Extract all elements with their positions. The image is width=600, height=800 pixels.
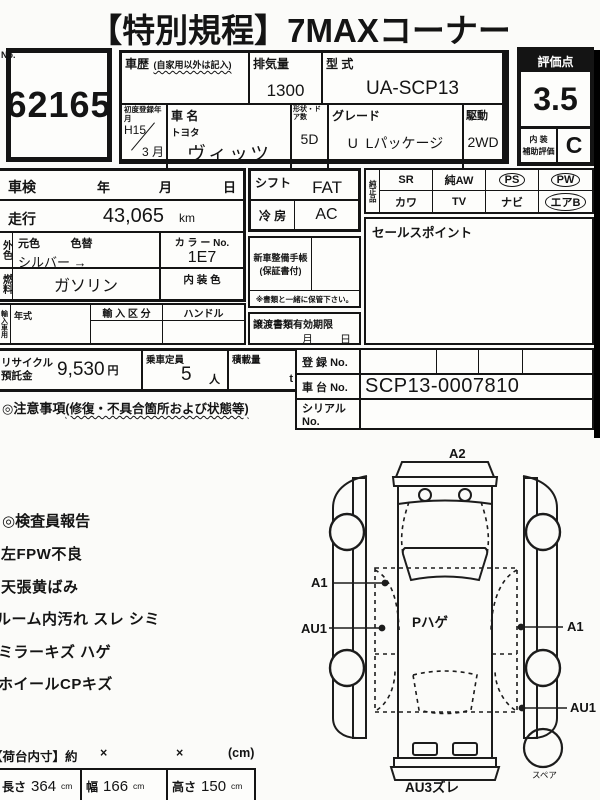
sales-point-box: セールスポイント (364, 217, 594, 345)
headlight-right (459, 489, 471, 501)
page-title: 【特別規程】7MAXコーナー (0, 4, 600, 52)
damage-zone-dashed (375, 502, 517, 714)
caution-note: (修復・不具合箇所および状態等) (65, 402, 248, 416)
grade-cell: グレード U Lパッケージ (329, 105, 464, 168)
transfer-docs-box: 譲渡書類有効期限 月 日 (248, 312, 361, 345)
cargo-x2: × (176, 746, 183, 760)
equipment-sr: SR (380, 170, 433, 191)
maker-name: トヨタ (171, 125, 287, 139)
color-change-label: 色替 (70, 238, 92, 250)
width-value: 166 (103, 778, 128, 795)
diagram-label-a2: A2 (449, 446, 466, 461)
first-registration-cell: 初度登録年月 H15 3 月 (122, 105, 168, 168)
import-handle-label: ハンドル (163, 305, 244, 321)
color-row: 外色 元色 色替 シルバー → カ ラ ー No. 1E7 (0, 233, 243, 269)
import-year-cell: 年式 (11, 305, 91, 343)
registration-no-label: 登 録 No. (297, 350, 361, 373)
mileage-label: 走行 (8, 209, 36, 229)
equipment-pw: PW (539, 170, 592, 191)
taillight-right (453, 743, 477, 755)
registration-no-row: 登 録 No. (297, 350, 592, 375)
inspection-row: 車検 年 月 日 (0, 171, 243, 201)
diagram-note-paint: Pハゲ (412, 614, 449, 630)
report-item: 左FPW不良 (1, 543, 82, 564)
history-note: (自家用以外は記入) (153, 60, 231, 70)
length-value: 364 (31, 778, 56, 795)
caution-heading: ◎注意事項(修復・不具合箇所および状態等) (2, 398, 249, 417)
first-registration-label: 初度登録年月 (124, 106, 164, 123)
inspection-label: 車検 (8, 177, 36, 197)
capacity-cell: 乗車定員 5 人 (143, 351, 229, 389)
sales-point-label: セールスポイント (372, 226, 472, 240)
cargo-x1: × (100, 746, 107, 760)
history-label: 車歴 (125, 57, 149, 71)
recycle-fee: 9,530 (57, 359, 105, 381)
report-item: ミラーキズ ハゲ (0, 641, 111, 662)
displacement-value: 1300 (253, 81, 318, 101)
car-name-label: 車 名 (171, 109, 198, 123)
import-handle-cell: ハンドル (163, 305, 244, 343)
serial-no-row: シリアル No. (297, 400, 592, 428)
fuel-value: ガソリン (13, 269, 161, 299)
diagram-label-a1-left: A1 (311, 575, 328, 590)
displacement-label: 排気量 (253, 57, 289, 71)
history-cell: 車歴 (自家用以外は記入) (122, 53, 250, 103)
rear-window (413, 671, 477, 714)
import-side-label: 輸入車用 (0, 305, 11, 343)
service-book-label: 新車整備手帳 (保証書付) (250, 238, 312, 290)
capacity-unit: 人 (209, 371, 220, 387)
right-rear-wheel (526, 650, 560, 686)
rear-bumper (394, 758, 496, 767)
inspection-month: 月 (159, 177, 172, 196)
oem-side-label: 純正品 (366, 170, 380, 212)
color-no-label: カ ラ ー No. (163, 234, 241, 249)
equipment-ps: PS (486, 170, 539, 191)
left-front-wheel (330, 514, 364, 550)
shape-value: 5D (293, 131, 326, 147)
cargo-height-cell: 高さ 150 cm (168, 770, 254, 800)
mileage-value: 43,065 (69, 205, 164, 228)
height-label: 高さ (172, 778, 196, 795)
left-rear-wheel (330, 650, 364, 686)
photo-edge-shadow (594, 50, 600, 438)
diagram-label-a1-right: A1 (567, 619, 584, 634)
exterior-color-side-label: 外色 (0, 233, 13, 267)
displacement-cell: 排気量 1300 (250, 53, 323, 103)
drive-label: 駆動 (466, 110, 488, 122)
transfer-docs-label: 譲渡書類有効期限 (253, 316, 333, 331)
headlight-left (419, 489, 431, 501)
service-book-box: 新車整備手帳 (保証書付) ※書類と一緒に保管下さい。 (248, 236, 361, 308)
ac-value: AC (295, 201, 358, 229)
car-name-cell: 車 名 トヨタ ヴィッツ (168, 105, 292, 168)
spare-tire (524, 729, 562, 767)
interior-color-cell: 内 装 色 (161, 269, 243, 299)
shape-cell: 形状・ドア数 5D (292, 105, 329, 168)
ac-row: 冷 房 AC (251, 201, 358, 229)
keep-documents-note: ※書類と一緒に保管下さい。 (250, 290, 359, 306)
taillight-left (413, 743, 437, 755)
capacity-label: 乗車定員 (146, 352, 184, 366)
recycle-table: リサイクル預託金 9,530 円 乗車定員 5 人 積載量 t (0, 348, 302, 392)
inspector-report-heading: ◎検査員報告 (2, 510, 90, 531)
front-bumper-lip (393, 477, 497, 486)
color-no-value: 1E7 (163, 249, 241, 267)
chassis-no-value: SCP13-0007810 (361, 375, 592, 398)
recycle-label: リサイクル預託金 (1, 357, 57, 382)
equipment-navi: ナビ (486, 191, 539, 212)
rear-bumper-skirt (391, 767, 499, 780)
shift-value: FAT (312, 178, 342, 198)
color-cell: 元色 色替 シルバー → (13, 233, 161, 267)
transfer-day: 日 (340, 331, 351, 347)
windshield (403, 548, 488, 580)
service-book-value-cell (312, 238, 359, 290)
lot-number-box: 62165 (6, 48, 112, 162)
diagram-label-au1-left: AU1 (301, 621, 327, 636)
diagram-label-au1-right: AU1 (570, 700, 596, 715)
model-code-label: 型 式 (326, 57, 353, 71)
report-item: ルーム内汚れ スレ シミ (0, 608, 160, 629)
oem-equipment-table: 純正品 SR 純AW PS PW カワ TV ナビ エアB (364, 168, 594, 214)
cargo-length-cell: 長さ 364 cm (0, 770, 82, 800)
cargo-dims-table: 長さ 364 cm 幅 166 cm 高さ 150 cm (0, 768, 256, 800)
chassis-no-label: 車 台 No. (297, 375, 361, 398)
cargo-width-cell: 幅 166 cm (82, 770, 168, 800)
car-name-value: ヴィッツ (171, 139, 287, 166)
lot-number: 62165 (6, 84, 111, 126)
width-unit: cm (133, 781, 144, 791)
lot-no-label: No. (1, 50, 16, 60)
load-label: 積載量 (232, 352, 261, 366)
auction-sheet: 【特別規程】7MAXコーナー No. 62165 車歴 (自家用以外は記入) 排… (0, 0, 600, 800)
mileage-row: 走行 43,065 km (0, 201, 243, 233)
ac-label: 冷 房 (251, 201, 295, 229)
interior-rating-grade: C (558, 129, 590, 162)
inspection-day: 日 (223, 177, 236, 196)
import-class-cell: 輸 入 区 分 (91, 305, 163, 343)
mileage-unit: km (179, 211, 195, 225)
interior-rating-label: 内 装 補助評価 (521, 129, 558, 162)
equipment-tv: TV (433, 191, 486, 212)
serial-no-label: シリアル No. (297, 400, 361, 428)
shift-ac-table: シフト FAT 冷 房 AC (248, 168, 361, 232)
first-registration-month: 3 月 (124, 143, 164, 160)
rating-score: 3.5 (521, 72, 590, 126)
hood-line (398, 501, 492, 505)
right-front-wheel (526, 514, 560, 550)
color-no-cell: カ ラ ー No. 1E7 (161, 233, 243, 267)
import-year-label: 年式 (14, 311, 32, 321)
leader-lines (329, 580, 567, 710)
report-item: ホイールCPキズ (0, 673, 113, 694)
shift-row: シフト FAT (251, 171, 358, 201)
equipment-leather: カワ (380, 191, 433, 212)
length-label: 長さ (2, 778, 26, 795)
recycle-cell: リサイクル預託金 9,530 円 (0, 351, 143, 389)
load-cell: 積載量 t (229, 351, 299, 389)
load-unit: t (289, 373, 293, 385)
front-bumper (396, 462, 494, 477)
inspection-year: 年 (97, 177, 110, 196)
rating-box: 評価点 3.5 内 装 補助評価 C (517, 47, 594, 166)
height-unit: cm (231, 781, 242, 791)
diagram-label-au3: AU3ズレ (405, 779, 459, 795)
cargo-unit: (cm) (228, 746, 254, 760)
transfer-month: 月 (302, 331, 313, 347)
interior-color-label: 内 装 色 (183, 274, 220, 286)
chassis-no-row: 車 台 No. SCP13-0007810 (297, 375, 592, 400)
car-damage-diagram: A2 A1 AU1 A1 AU1 Pハゲ AU3ズレ スペア (295, 440, 600, 800)
rating-score-label: 評価点 (521, 51, 590, 72)
length-unit: cm (61, 781, 72, 791)
equipment-aw: 純AW (433, 170, 486, 191)
fuel-row: 燃料 ガソリン 内 装 色 (0, 269, 243, 299)
recycle-fee-unit: 円 (108, 362, 119, 378)
grade-label: グレード (332, 109, 380, 123)
registration-table: 登 録 No. 車 台 No. SCP13-0007810 シリアル No. (295, 348, 594, 430)
fuel-side-label: 燃料 (0, 269, 13, 299)
left-spec-table: 車検 年 月 日 走行 43,065 km 外色 元色 色替 シルバー → カ … (0, 168, 246, 302)
equipment-airbag: エアB (539, 191, 592, 212)
original-color-label: 元色 (18, 238, 40, 250)
report-item: 天張黄ばみ (1, 576, 79, 597)
import-table: 輸入車用 年式 輸 入 区 分 ハンドル (0, 303, 246, 345)
capacity-value: 5 (181, 364, 192, 386)
drive-cell: 駆動 2WD (464, 105, 502, 168)
drive-value: 2WD (466, 134, 500, 150)
diagram-label-spare: スペア (532, 770, 557, 780)
shift-label: シフト (255, 174, 291, 191)
shape-label: 形状・ドア数 (293, 106, 326, 122)
grade-value: U Lパッケージ (332, 133, 459, 153)
width-label: 幅 (86, 778, 98, 795)
import-class-label: 輸 入 区 分 (91, 305, 162, 321)
model-code-cell: 型 式 UA-SCP13 (323, 53, 502, 103)
height-value: 150 (201, 778, 226, 795)
model-code-value: UA-SCP13 (326, 78, 499, 100)
vehicle-table: 車歴 (自家用以外は記入) 排気量 1300 型 式 UA-SCP13 初度登録… (119, 50, 509, 164)
